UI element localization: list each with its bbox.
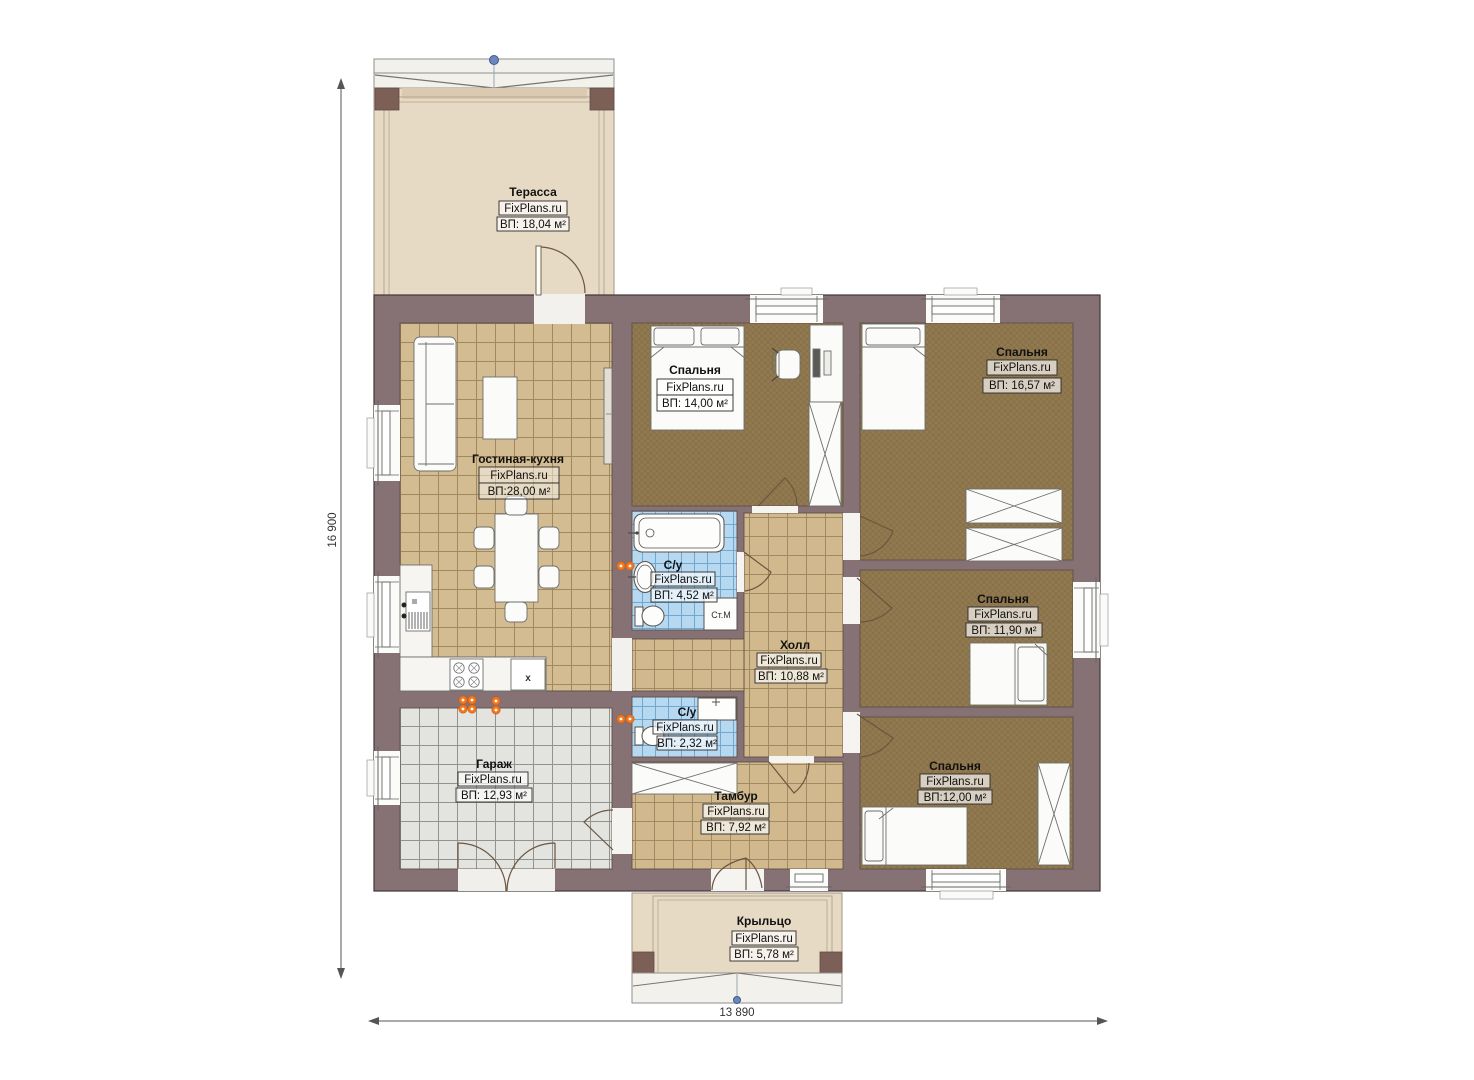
svg-text:Гостиная-кухня: Гостиная-кухня [472, 452, 564, 466]
svg-text:Крыльцо: Крыльцо [737, 914, 792, 928]
svg-text:ВП: 7,92 м²: ВП: 7,92 м² [706, 822, 766, 834]
svg-text:Гараж: Гараж [476, 757, 512, 771]
svg-text:FixPlans.ru: FixPlans.ru [666, 382, 724, 394]
svg-text:Спальня: Спальня [996, 345, 1048, 359]
svg-text:ВП: 12,93 м²: ВП: 12,93 м² [461, 790, 527, 802]
svg-text:ВП: 14,00 м²: ВП: 14,00 м² [662, 398, 728, 410]
svg-text:ВП:28,00 м²: ВП:28,00 м² [488, 486, 551, 498]
svg-text:С/у: С/у [664, 558, 683, 572]
svg-text:ВП: 10,88 м²: ВП: 10,88 м² [758, 671, 824, 683]
svg-text:FixPlans.ru: FixPlans.ru [490, 470, 548, 482]
svg-text:ВП:12,00 м²: ВП:12,00 м² [924, 792, 987, 804]
svg-text:С/у: С/у [678, 705, 697, 719]
svg-text:FixPlans.ru: FixPlans.ru [504, 203, 562, 215]
svg-text:FixPlans.ru: FixPlans.ru [760, 655, 818, 667]
svg-text:FixPlans.ru: FixPlans.ru [926, 776, 984, 788]
svg-text:FixPlans.ru: FixPlans.ru [735, 933, 793, 945]
svg-text:ВП: 11,90 м²: ВП: 11,90 м² [971, 625, 1036, 637]
svg-text:ВП: 18,04 м²: ВП: 18,04 м² [500, 219, 566, 231]
svg-text:16 900: 16 900 [327, 512, 339, 547]
svg-text:FixPlans.ru: FixPlans.ru [464, 774, 522, 786]
svg-text:Тамбур: Тамбур [714, 789, 758, 803]
svg-text:Спальня: Спальня [929, 759, 981, 773]
svg-text:FixPlans.ru: FixPlans.ru [993, 362, 1051, 374]
svg-text:FixPlans.ru: FixPlans.ru [656, 722, 714, 734]
svg-text:Спальня: Спальня [669, 363, 721, 377]
svg-text:FixPlans.ru: FixPlans.ru [974, 609, 1032, 621]
svg-text:Холл: Холл [780, 638, 810, 652]
svg-text:ВП: 16,57 м²: ВП: 16,57 м² [989, 380, 1055, 392]
svg-text:13 890: 13 890 [719, 1007, 754, 1019]
svg-text:ВП: 2,32 м²: ВП: 2,32 м² [657, 738, 717, 750]
svg-text:FixPlans.ru: FixPlans.ru [707, 806, 765, 818]
svg-text:Терасса: Терасса [509, 185, 557, 199]
svg-text:Спальня: Спальня [977, 592, 1029, 606]
svg-text:FixPlans.ru: FixPlans.ru [654, 574, 712, 586]
svg-text:ВП: 4,52 м²: ВП: 4,52 м² [654, 590, 714, 602]
svg-text:Ст.М: Ст.М [711, 610, 731, 620]
svg-text:x: x [525, 673, 531, 684]
svg-text:ВП: 5,78 м²: ВП: 5,78 м² [734, 949, 794, 961]
